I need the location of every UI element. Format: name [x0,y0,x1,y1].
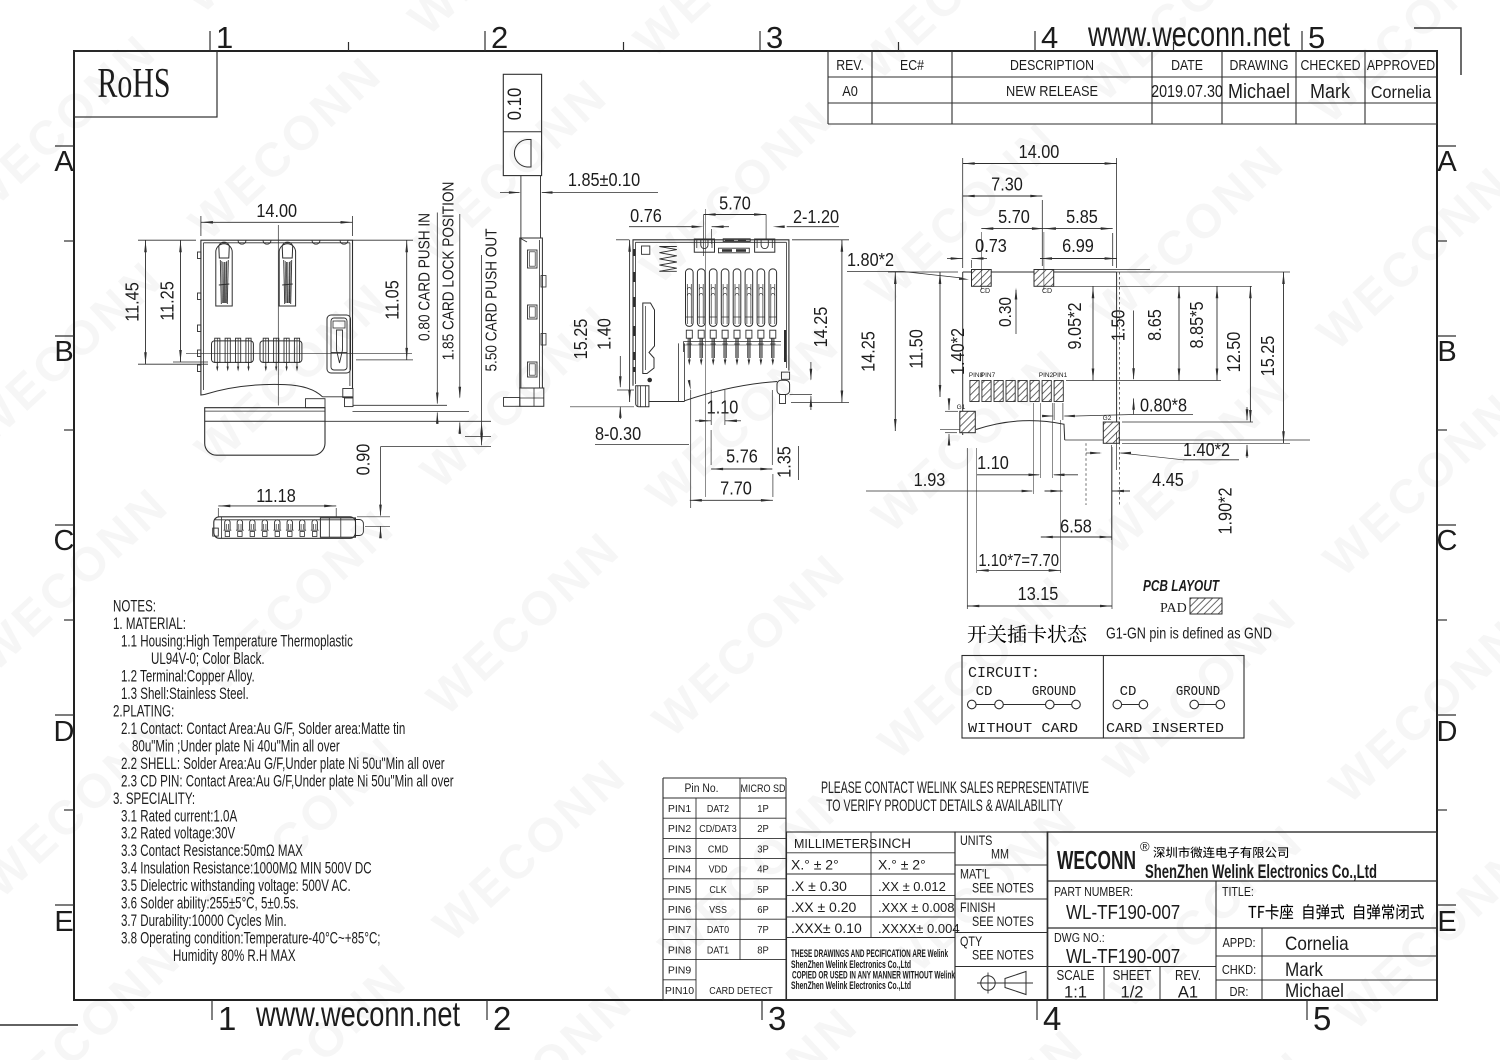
svg-text:2-1.20: 2-1.20 [793,206,839,227]
svg-text:2: 2 [493,1000,511,1037]
svg-text:5.85: 5.85 [1066,206,1098,227]
svg-text:SHEET: SHEET [1113,967,1152,984]
svg-text:DAT0: DAT0 [707,925,730,937]
svg-text:CD: CD [976,684,993,700]
svg-text:2019.07.30: 2019.07.30 [1151,83,1223,102]
svg-text:1.10*7=7.70: 1.10*7=7.70 [978,551,1059,570]
svg-text:0.80 CARD PUSH IN: 0.80 CARD PUSH IN [417,213,434,341]
svg-text:PAD: PAD [1160,601,1187,616]
svg-text:2: 2 [491,20,508,55]
svg-text:CLK: CLK [709,884,727,896]
svg-text:NOTES:: NOTES: [113,598,156,617]
svg-text:1: 1 [218,1000,236,1037]
svg-text:4: 4 [1043,1000,1061,1037]
svg-text:SEE NOTES: SEE NOTES [972,914,1034,929]
svg-text:CARD INSERTED: CARD INSERTED [1106,721,1224,737]
svg-text:7.70: 7.70 [720,478,752,499]
svg-text:14.25: 14.25 [858,331,879,372]
svg-text:14.25: 14.25 [810,307,831,348]
svg-text:.XX ± 0.20: .XX ± 0.20 [791,899,856,915]
svg-text:8.65: 8.65 [1144,309,1165,341]
svg-text:12.50: 12.50 [1223,332,1244,373]
svg-text:1.80*2: 1.80*2 [847,249,894,270]
svg-text:4P: 4P [757,864,769,876]
svg-text:SEE NOTES: SEE NOTES [972,880,1034,895]
svg-text:1.93: 1.93 [914,469,946,490]
svg-text:CARD DETECT: CARD DETECT [709,985,772,997]
svg-text:0.30: 0.30 [996,297,1015,327]
svg-text:A1: A1 [1178,984,1198,1002]
svg-text:1/2: 1/2 [1121,984,1144,1002]
svg-text:PIN1: PIN1 [1053,372,1068,379]
svg-text:5.76: 5.76 [726,446,758,467]
svg-text:2.PLATING:: 2.PLATING: [113,702,174,721]
svg-text:E: E [1437,906,1456,938]
svg-text:GROUND: GROUND [1176,683,1220,699]
svg-text:.XXX± 0.10: .XXX± 0.10 [791,920,862,936]
svg-text:WL-TF190-007: WL-TF190-007 [1066,945,1180,968]
svg-text:15.25: 15.25 [570,319,591,360]
svg-text:6P: 6P [757,905,769,917]
svg-text:0.76: 0.76 [630,205,662,226]
svg-text:PIN1: PIN1 [668,803,692,815]
svg-text:1: 1 [216,20,233,55]
svg-text:Mark: Mark [1285,959,1324,980]
svg-text:1.50: 1.50 [1108,310,1129,342]
svg-text:1. MATERIAL:: 1. MATERIAL: [113,615,186,634]
svg-text:1.3 Shell:Stainless Steel.: 1.3 Shell:Stainless Steel. [121,685,249,704]
svg-text:CD: CD [1042,288,1052,295]
svg-text:VDD: VDD [709,864,728,876]
svg-text:5.50 CARD PUSH OUT: 5.50 CARD PUSH OUT [484,228,501,371]
svg-text:C: C [54,525,75,557]
svg-text:CD: CD [1120,684,1137,700]
svg-text:MILLIMETERS: MILLIMETERS [794,837,877,851]
svg-text:G2: G2 [1103,415,1112,422]
svg-text:2P: 2P [757,824,769,836]
svg-text:Michael: Michael [1228,81,1290,103]
svg-text:14.00: 14.00 [1019,141,1060,162]
svg-text:Humidity 80% R.H MAX: Humidity 80% R.H MAX [173,947,296,966]
svg-text:G1: G1 [957,404,966,411]
svg-text:8-0.30: 8-0.30 [595,423,641,444]
svg-text:3: 3 [766,20,783,55]
svg-text:®: ® [1140,839,1150,854]
svg-text:3.5 Dielectric withstanding vo: 3.5 Dielectric withstanding voltage: 500… [121,877,351,896]
svg-text:5.70: 5.70 [998,206,1030,227]
svg-text:0.80*8: 0.80*8 [1140,395,1187,416]
svg-text:B: B [1437,336,1456,368]
svg-text:DRAWING: DRAWING [1230,57,1289,73]
svg-text:.XXX ± 0.008: .XXX ± 0.008 [878,900,955,915]
svg-text:4.45: 4.45 [1152,469,1184,490]
svg-text:DAT2: DAT2 [707,803,729,815]
svg-text:DESCRIPTION: DESCRIPTION [1010,57,1094,73]
svg-text:www.weconn.net: www.weconn.net [1087,15,1290,54]
svg-text:8.85*5: 8.85*5 [1186,301,1207,348]
svg-text:3.6 Solder ability:255±5°C, 5±: 3.6 Solder ability:255±5°C, 5±0.5s. [121,895,299,914]
svg-text:DATE: DATE [1171,57,1203,73]
svg-text:1.85±0.10: 1.85±0.10 [568,169,640,190]
svg-text:1.40: 1.40 [594,318,615,350]
svg-text:DR:: DR: [1229,984,1248,999]
svg-text:CIRCUIT:: CIRCUIT: [968,665,1040,682]
svg-text:PIN8: PIN8 [668,944,692,956]
svg-text:3: 3 [768,1000,786,1037]
svg-text:ShenZhen Welink Electronics Co: ShenZhen Welink Electronics Co.,Ltd [1145,862,1377,883]
svg-text:PIN9: PIN9 [668,965,692,977]
svg-text:1.90*2: 1.90*2 [1215,487,1236,534]
svg-text:11.50: 11.50 [906,329,927,368]
svg-text:1.40*2: 1.40*2 [947,328,968,375]
svg-text:1P: 1P [757,804,769,816]
svg-text:PIN3: PIN3 [668,843,692,855]
svg-text:3.7 Durability:10000 Cycles Mi: 3.7 Durability:10000 Cycles Min. [121,912,287,931]
svg-text:C: C [1437,525,1458,557]
svg-text:X.° ± 2°: X.° ± 2° [878,857,926,873]
svg-text:G1-GN pin is defined as GND: G1-GN pin is defined as GND [1106,626,1272,643]
svg-text:PIN10: PIN10 [665,985,694,997]
svg-text:UNITS: UNITS [960,833,992,848]
svg-text:4: 4 [1041,20,1058,55]
svg-text:3.3 Contact Resistance:50mΩ MA: 3.3 Contact Resistance:50mΩ MAX [121,842,303,861]
svg-text:1.40*2: 1.40*2 [1183,439,1230,460]
svg-text:GROUND: GROUND [1032,683,1076,699]
svg-text:MICRO SD: MICRO SD [740,783,785,795]
svg-text:Mark: Mark [1310,81,1350,103]
svg-text:PIN4: PIN4 [668,864,692,876]
svg-text:PART NUMBER:: PART NUMBER: [1054,885,1133,899]
svg-text:11.25: 11.25 [157,281,178,320]
svg-text:.XX ± 0.012: .XX ± 0.012 [878,879,946,894]
svg-text:5.70: 5.70 [719,193,751,214]
svg-text:PIN2: PIN2 [1039,372,1054,379]
svg-text:5P: 5P [757,884,769,896]
svg-text:8P: 8P [757,945,769,957]
svg-text:D: D [1437,716,1458,748]
svg-text:3.1 Rated current:1.0A: 3.1 Rated current:1.0A [121,807,238,826]
svg-text:7.30: 7.30 [991,174,1023,195]
svg-text:D: D [54,716,75,748]
svg-text:Pin No.: Pin No. [685,783,719,796]
svg-text:TITLE:: TITLE: [1222,885,1254,899]
svg-text:1.85 CARD LOCK POSITION: 1.85 CARD LOCK POSITION [441,182,458,361]
svg-text:WL-TF190-007: WL-TF190-007 [1066,901,1180,924]
svg-text:0.90: 0.90 [353,444,374,476]
svg-text:CD/DAT3: CD/DAT3 [699,824,736,836]
svg-text:VSS: VSS [709,904,727,916]
svg-text:1:1: 1:1 [1064,984,1087,1002]
svg-text:APPROVED: APPROVED [1367,57,1435,73]
svg-text:MM: MM [991,846,1009,861]
svg-text:DWG NO.:: DWG NO.: [1054,931,1105,945]
svg-text:REV.: REV. [1175,967,1201,984]
svg-text:DAT1: DAT1 [707,945,729,957]
svg-text:7P: 7P [757,925,769,937]
svg-text:6.99: 6.99 [1062,235,1094,256]
svg-text:11.18: 11.18 [256,485,295,506]
svg-text:NEW RELEASE: NEW RELEASE [1006,82,1098,99]
svg-text:3. SPECIALITY:: 3. SPECIALITY: [113,790,195,809]
svg-text:1.2 Terminal:Copper Alloy.: 1.2 Terminal:Copper Alloy. [121,667,255,686]
svg-text:SEE NOTES: SEE NOTES [972,947,1034,962]
svg-text:3.8 Operating condition:Temper: 3.8 Operating condition:Temperature-40°C… [121,930,381,949]
svg-text:PLEASE CONTACT WELINK SALES RE: PLEASE CONTACT WELINK SALES REPRESENTATI… [821,778,1089,797]
svg-text:6.58: 6.58 [1060,516,1092,537]
svg-text:PIN2: PIN2 [668,823,692,835]
svg-text:CMD: CMD [708,844,728,856]
svg-text:9.05*2: 9.05*2 [1064,302,1085,349]
svg-text:1.1 Housing:High Temperature T: 1.1 Housing:High Temperature Thermoplast… [121,633,353,652]
svg-text:www.weconn.net: www.weconn.net [255,995,460,1034]
svg-text:15.25: 15.25 [1257,336,1278,377]
svg-text:.X ± 0.30: .X ± 0.30 [791,878,847,894]
svg-text:INCH: INCH [878,836,911,851]
svg-text:11.05: 11.05 [382,280,403,319]
svg-text:3.4 Insulation Resistance:1000: 3.4 Insulation Resistance:1000MΩ MIN 500… [121,860,372,879]
svg-text:A0: A0 [842,82,858,99]
svg-text:PIN7: PIN7 [668,924,692,936]
svg-text:A: A [54,146,74,178]
svg-text:Michael: Michael [1285,980,1344,1001]
svg-text:A: A [1437,146,1457,178]
svg-text:PIN7: PIN7 [981,372,996,379]
svg-text:SCALE: SCALE [1056,967,1094,984]
svg-text:PIN5: PIN5 [668,884,692,896]
svg-text:RoHS: RoHS [98,61,171,107]
svg-text:Cornelia: Cornelia [1285,933,1350,954]
svg-text:0.10: 0.10 [504,88,525,121]
svg-text:ShenZhen Welink Electronics Co: ShenZhen Welink Electronics Co.,Ltd [791,980,911,992]
svg-text:.XXXX± 0.004: .XXXX± 0.004 [878,921,960,936]
svg-text:Cornelia: Cornelia [1371,82,1432,102]
svg-text:REV.: REV. [836,57,864,73]
svg-text:1.35: 1.35 [774,446,795,478]
svg-text:3.2 Rated voltage:30V: 3.2 Rated voltage:30V [121,825,236,844]
svg-text:PCB LAYOUT: PCB LAYOUT [1143,578,1220,595]
svg-text:11.45: 11.45 [122,282,143,321]
svg-text:CHKD:: CHKD: [1222,962,1256,977]
svg-text:5: 5 [1313,1000,1331,1037]
svg-text:WECONN: WECONN [1057,845,1136,875]
svg-text:3P: 3P [757,844,769,856]
svg-text:5: 5 [1308,20,1325,55]
svg-text:2.1 Contact: Contact Area:Au G: 2.1 Contact: Contact Area:Au G/F, Solder… [121,720,405,739]
svg-text:E: E [54,906,73,938]
svg-text:B: B [54,336,73,368]
svg-text:80u"Min ;Under plate Ni 40u"Mi: 80u"Min ;Under plate Ni 40u"Min all over [132,737,340,756]
svg-text:WITHOUT CARD: WITHOUT CARD [968,721,1078,737]
svg-text:UL94V-0; Color Black.: UL94V-0; Color Black. [151,650,265,669]
svg-text:14.00: 14.00 [256,200,297,221]
svg-text:APPD:: APPD: [1222,935,1255,950]
svg-text:2.2 SHELL: Solder Area:Au G/F,: 2.2 SHELL: Solder Area:Au G/F,Under plat… [121,755,445,774]
svg-text:0.73: 0.73 [975,235,1007,256]
svg-text:X.° ± 2°: X.° ± 2° [791,857,839,873]
svg-text:1.10: 1.10 [977,452,1009,473]
svg-text:PIN6: PIN6 [668,904,692,916]
svg-text:CHECKED: CHECKED [1300,57,1360,73]
svg-text:TO VERIFY PRODUCT DETAILS & AV: TO VERIFY PRODUCT DETAILS & AVAILABILITY [826,796,1063,815]
svg-text:2.3 CD PIN: Contact Area:Au G/: 2.3 CD PIN: Contact Area:Au G/F,Under pl… [121,772,454,791]
svg-text:EC#: EC# [900,57,924,73]
svg-text:13.15: 13.15 [1018,583,1059,604]
